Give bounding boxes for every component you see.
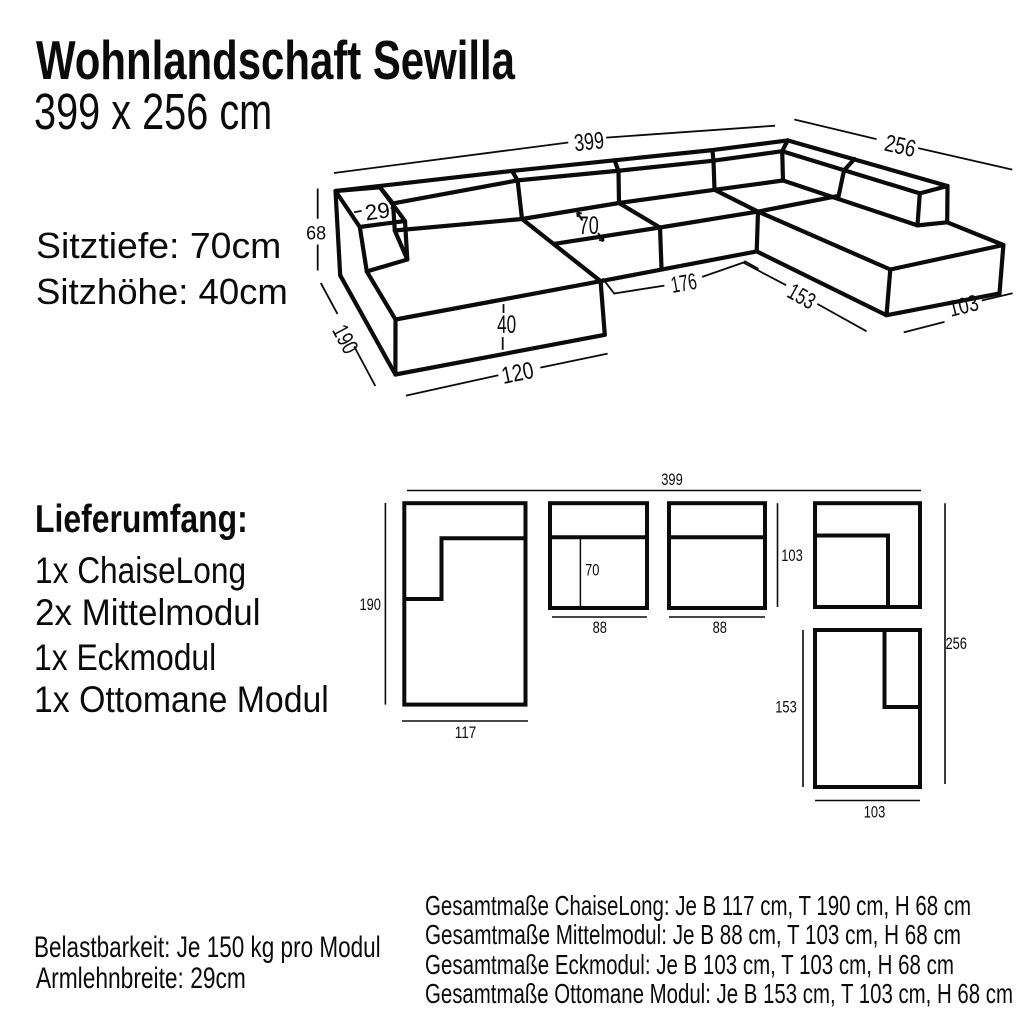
svg-text:29: 29 [363, 197, 391, 225]
svg-text:256: 256 [945, 634, 967, 653]
svg-text:176: 176 [669, 268, 699, 298]
svg-text:153: 153 [775, 697, 797, 716]
svg-text:103: 103 [781, 546, 803, 565]
svg-text:88: 88 [713, 618, 727, 637]
svg-text:399: 399 [573, 127, 606, 157]
svg-text:117: 117 [455, 723, 477, 742]
svg-text:190: 190 [359, 595, 381, 614]
svg-text:68: 68 [306, 222, 326, 244]
svg-text:88: 88 [593, 618, 607, 637]
svg-text:40: 40 [497, 311, 516, 339]
svg-text:70: 70 [579, 212, 599, 240]
svg-text:70: 70 [585, 561, 599, 580]
svg-text:103: 103 [946, 289, 981, 321]
svg-text:103: 103 [864, 803, 886, 822]
svg-text:256: 256 [882, 130, 918, 163]
svg-text:153: 153 [783, 278, 820, 314]
svg-text:399: 399 [661, 470, 683, 489]
svg-text:120: 120 [499, 357, 536, 390]
